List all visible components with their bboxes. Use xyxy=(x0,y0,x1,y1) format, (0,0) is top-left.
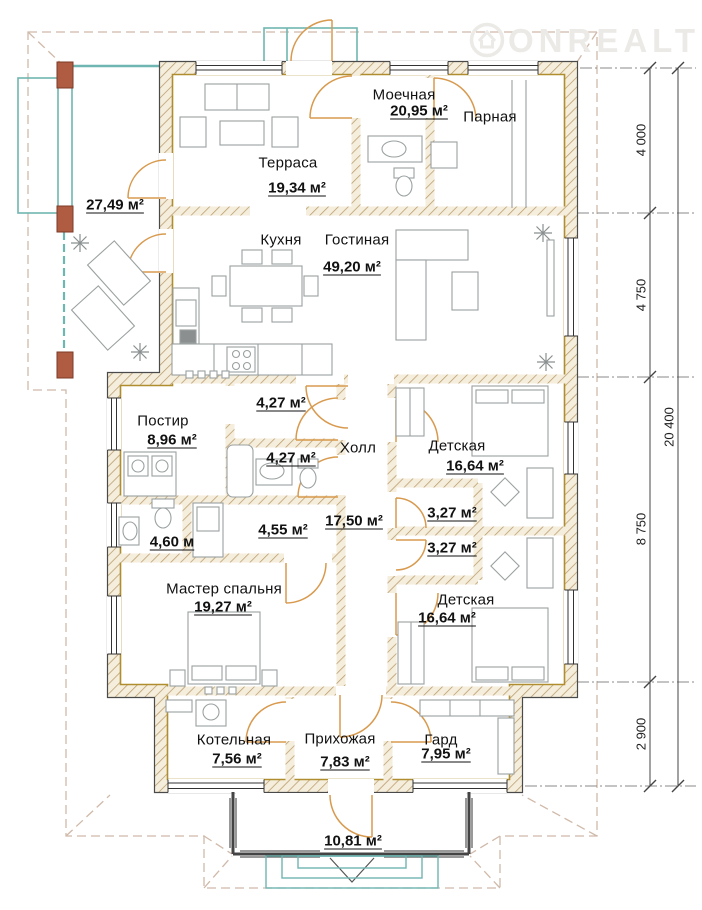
room-name-terrace: Терраса xyxy=(259,156,318,171)
room-area-closet-bottom: 3,27 м² xyxy=(427,541,476,556)
watermark-brand: ONREALT xyxy=(508,22,700,60)
room-area-bath-small: 4,60 м xyxy=(150,535,194,550)
room-name-kids-bottom: Детская xyxy=(438,593,495,608)
room-area-hall: 17,50 м² xyxy=(325,514,383,529)
room-area-terrace: 19,34 м² xyxy=(268,181,326,196)
dimension-total: 20 400 xyxy=(662,407,677,447)
room-area-wc-top: 4,27 м² xyxy=(256,396,305,411)
room-name-laundry: Постир xyxy=(137,414,188,429)
room-name-sauna: Парная xyxy=(463,110,516,125)
room-name-boiler: Котельная xyxy=(197,733,271,748)
room-name-entry: Прихожая xyxy=(304,732,375,747)
dimension-seg2: 4 750 xyxy=(634,279,649,312)
room-area-porch: 10,81 м² xyxy=(324,834,382,849)
room-name-kids-top: Детская xyxy=(429,439,486,454)
entry-steps xyxy=(266,856,438,888)
room-area-entry: 7,83 м² xyxy=(320,755,369,770)
room-area-dressing: 4,55 м² xyxy=(258,523,307,538)
room-area-laundry: 8,96 м² xyxy=(147,433,196,448)
room-area-boiler: 7,56 м² xyxy=(212,752,261,767)
room-name-hall: Холл xyxy=(340,441,376,456)
watermark-logo-icon xyxy=(468,21,506,59)
room-area-living: 49,20 м² xyxy=(323,260,381,275)
room-name-master: Мастер спальня xyxy=(166,582,282,597)
room-area-washroom: 20,95 м² xyxy=(390,104,448,119)
room-area-terrace-open: 27,49 м² xyxy=(86,198,144,213)
dimension-seg4: 2 900 xyxy=(634,718,649,751)
room-area-wardrobe: 7,95 м² xyxy=(421,747,470,762)
room-area-kids-top: 16,64 м² xyxy=(446,459,504,474)
room-name-kitchen: Кухня xyxy=(260,233,301,248)
dimension-seg3: 8 750 xyxy=(634,513,649,546)
room-area-master: 19,27 м² xyxy=(194,600,252,615)
room-area-bathroom-mid: 4,27 м² xyxy=(266,451,315,466)
room-area-closet-top: 3,27 м² xyxy=(427,506,476,521)
room-name-washroom: Моечная xyxy=(373,88,436,103)
floor-plan-page: ONREALT Терраса 19,34 м² 27,49 м² Моечна… xyxy=(0,0,702,910)
dimension-seg1: 4 000 xyxy=(634,124,649,157)
room-name-living: Гостиная xyxy=(325,233,390,248)
room-area-kids-bottom: 16,64 м² xyxy=(418,611,476,626)
